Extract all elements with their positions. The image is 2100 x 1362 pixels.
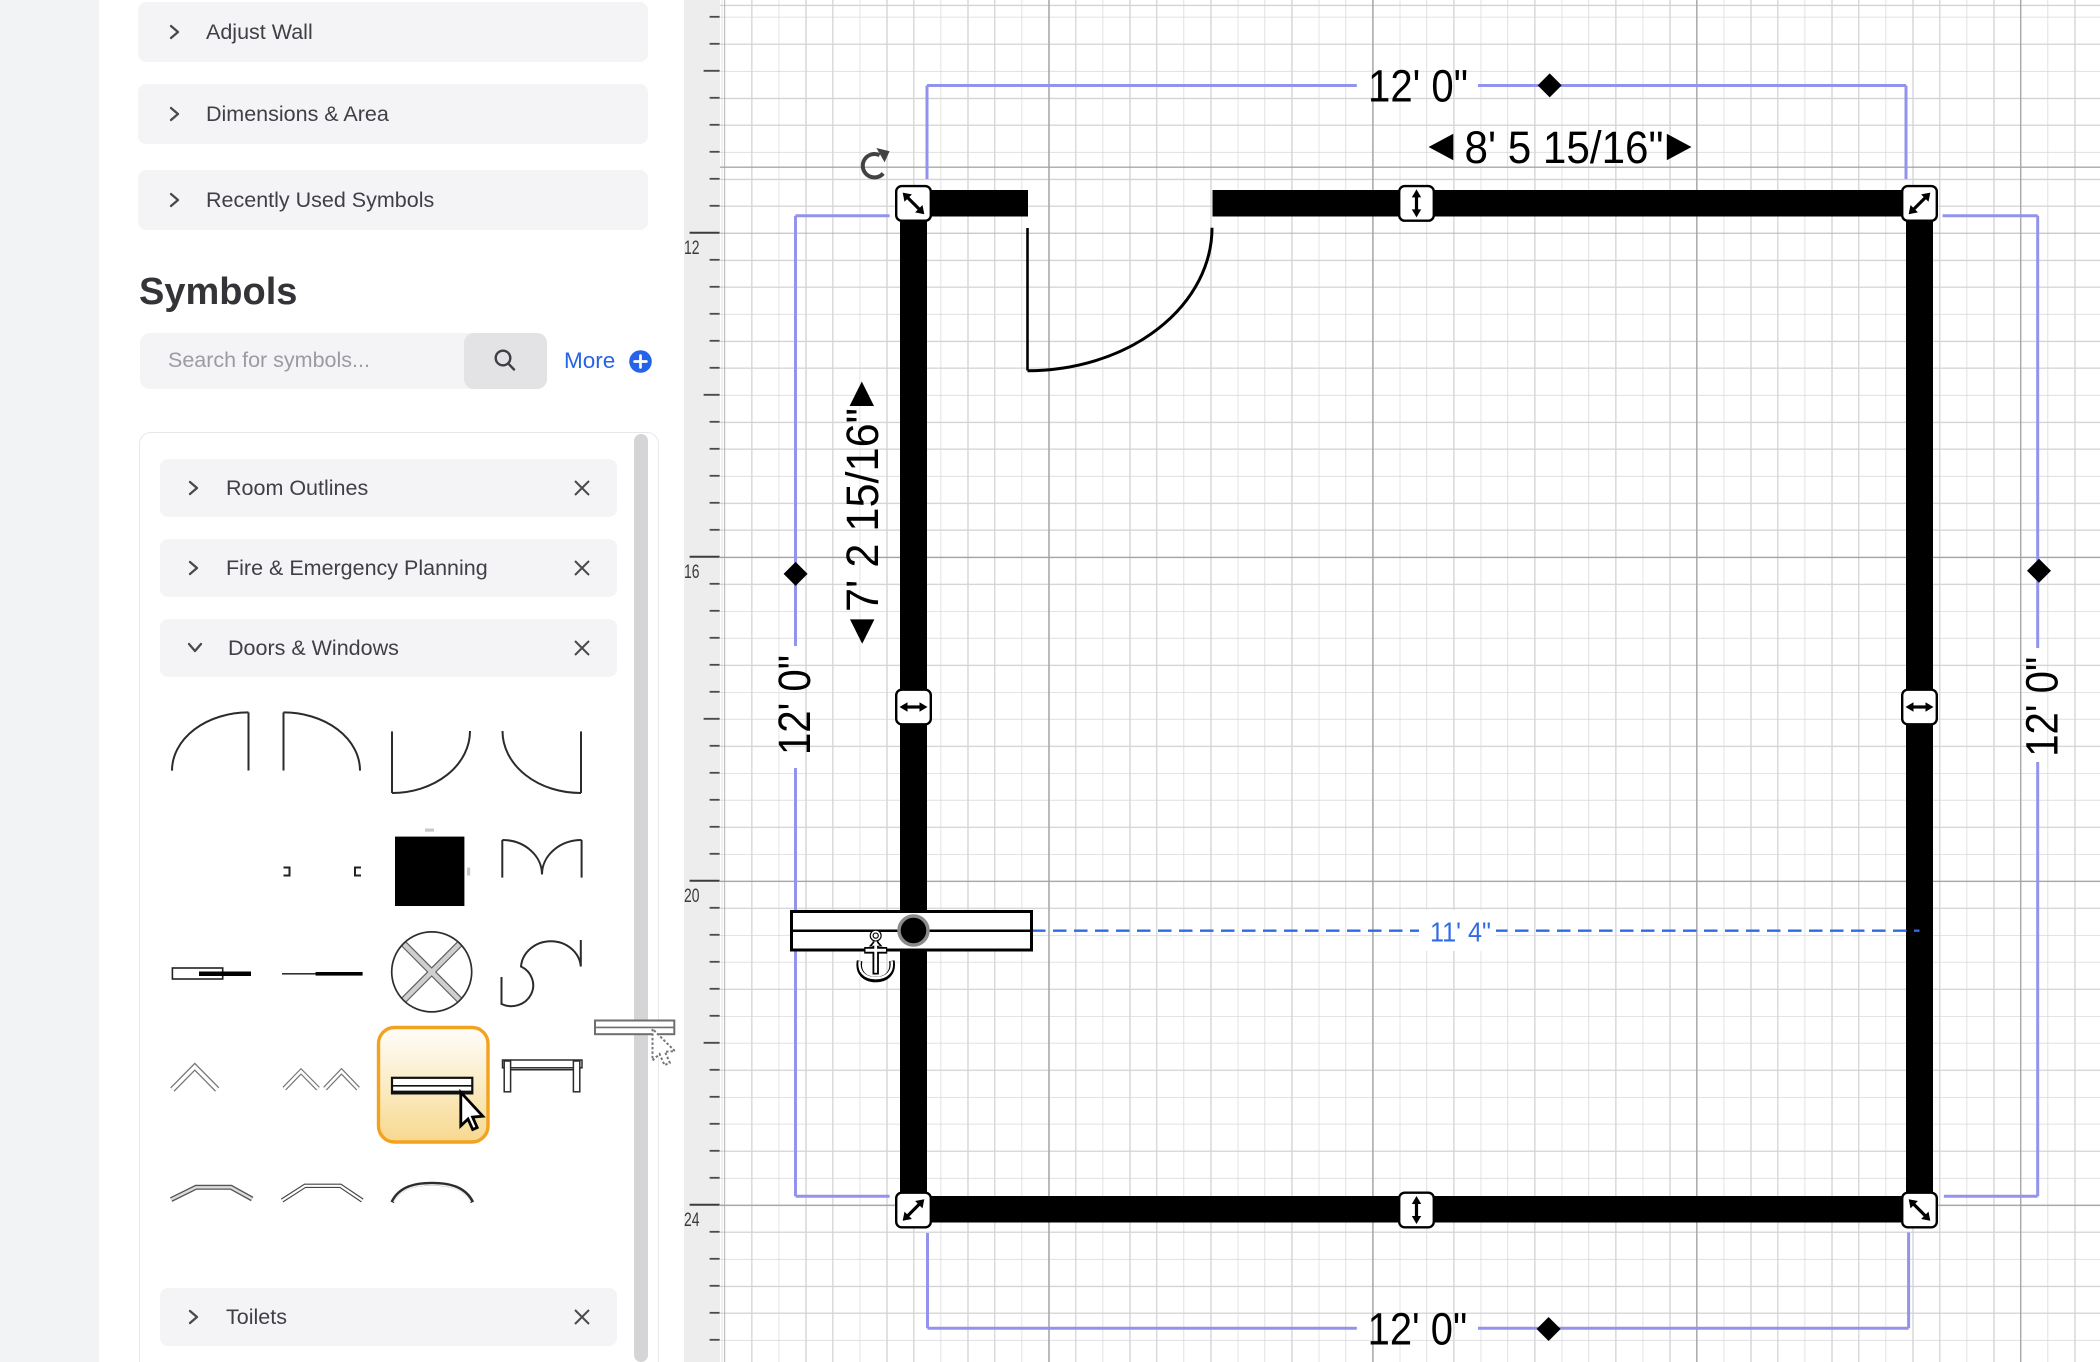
svg-text:12' 0": 12' 0": [769, 655, 820, 755]
svg-text:12' 0": 12' 0": [1368, 61, 1468, 112]
svg-text:11' 4": 11' 4": [1430, 917, 1491, 948]
svg-text:12' 0": 12' 0": [2017, 657, 2068, 757]
svg-text:12' 0": 12' 0": [1368, 1304, 1468, 1355]
svg-text:7' 2 15/16": 7' 2 15/16": [837, 408, 888, 612]
svg-text:8' 5 15/16": 8' 5 15/16": [1465, 122, 1664, 173]
